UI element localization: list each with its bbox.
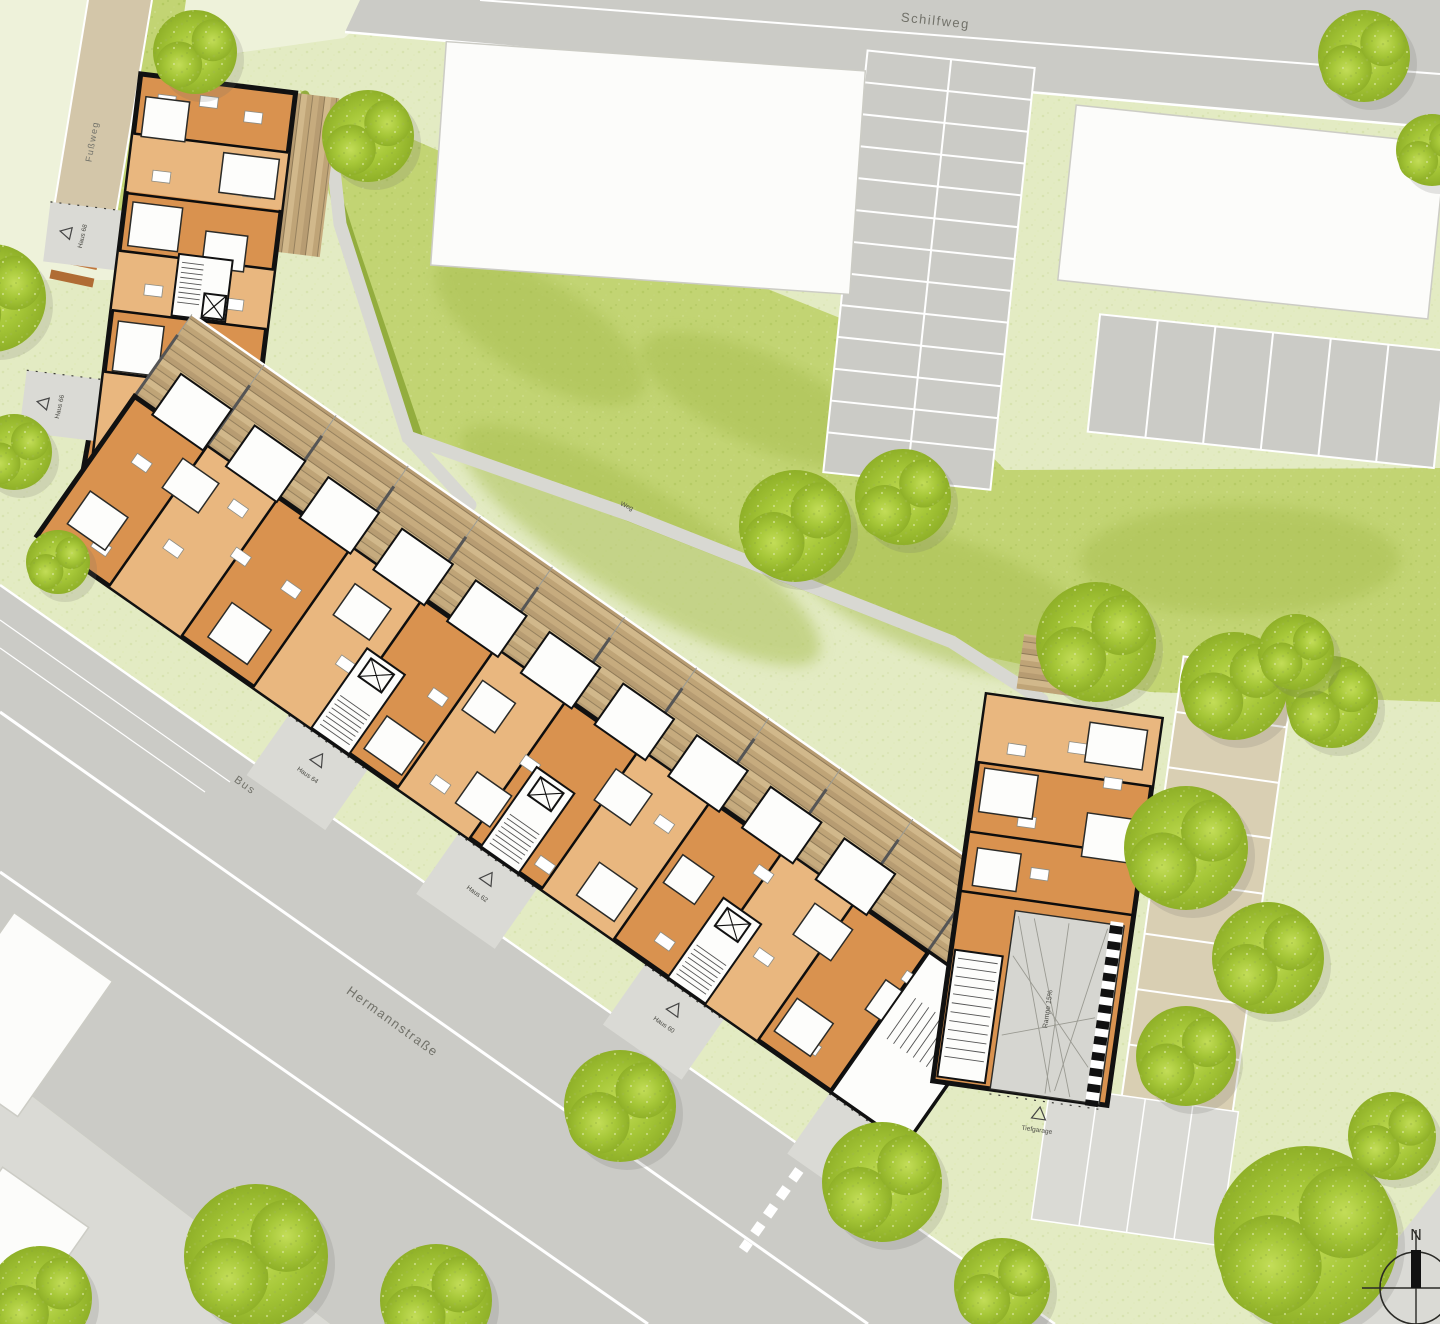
north-needle xyxy=(1411,1250,1421,1288)
site-plan: Weg Schilfweg Fußweg xyxy=(0,0,1440,1324)
neighbour-building-north xyxy=(431,42,866,295)
site-plan-canvas: Weg Schilfweg Fußweg xyxy=(0,0,1440,1324)
stair-core xyxy=(172,254,233,322)
